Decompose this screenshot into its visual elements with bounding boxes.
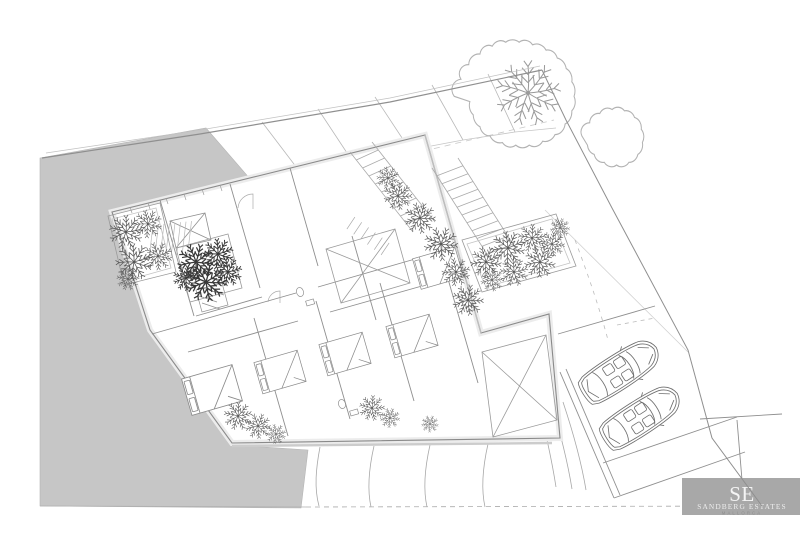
tree	[452, 40, 644, 167]
palm-icon	[518, 240, 563, 285]
logo-subtitle: MALLORCA	[722, 511, 762, 516]
tree-trunk-symbol	[495, 60, 562, 126]
cars	[573, 331, 688, 457]
brand-logo: SE SANDBERG ESTATES MALLORCA	[682, 478, 800, 516]
site-plan-sheet: SE SANDBERG ESTATES MALLORCA	[0, 0, 800, 539]
parking-area	[558, 306, 782, 498]
site-plan-drawing: SE SANDBERG ESTATES MALLORCA	[0, 0, 800, 539]
palm-icon	[466, 242, 507, 282]
